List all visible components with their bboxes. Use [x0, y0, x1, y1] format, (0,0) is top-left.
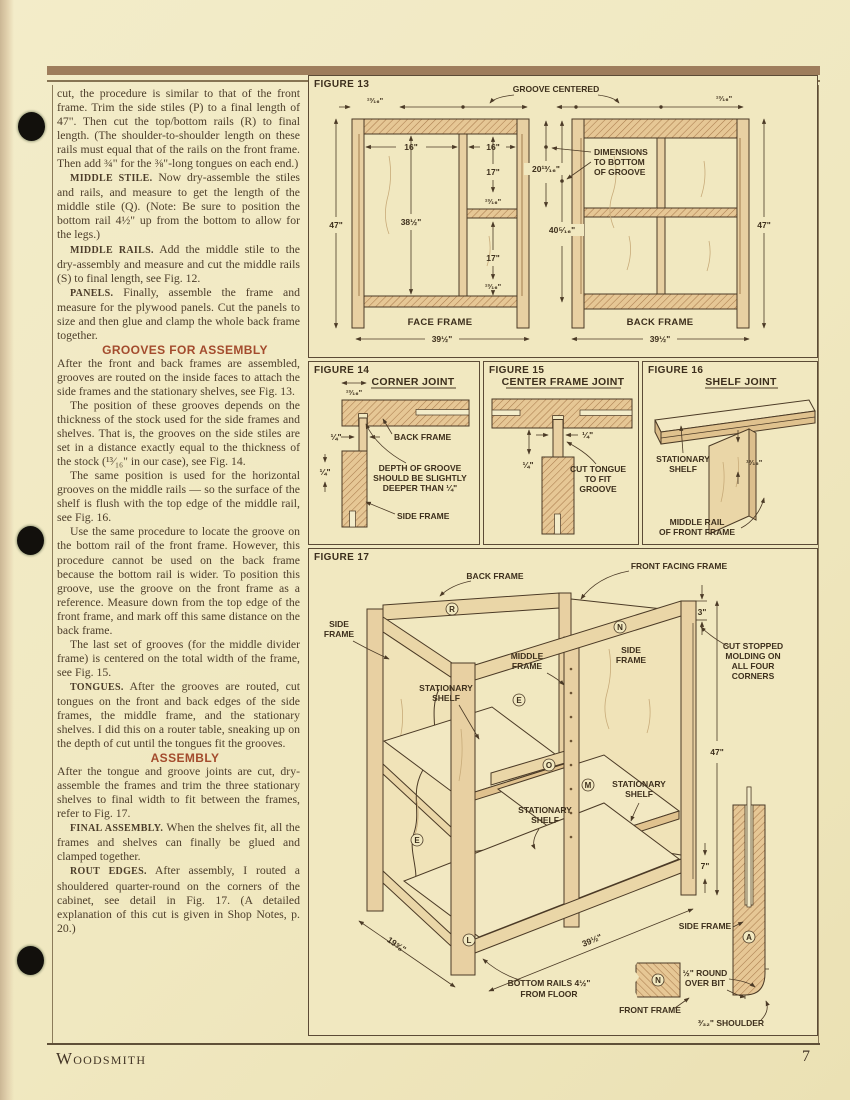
dim-40-5-16: 40⁵⁄₁₆": [549, 225, 575, 235]
paragraph: FINAL ASSEMBLY. When the shelves fit, al…: [57, 821, 300, 864]
dim-17: 17": [486, 253, 500, 263]
center-frame-joint-drawing: CENTER FRAME JOINT: [492, 376, 632, 534]
middle-frame-label: FRAME: [512, 661, 543, 671]
footer-page-number: 7: [802, 1048, 810, 1066]
shoulder-label: ³⁄₃₂" SHOULDER: [698, 1018, 764, 1028]
binder-hole: [18, 112, 45, 141]
back-frame-label: BACK FRAME: [394, 432, 451, 442]
dim-quarter: ¼": [582, 430, 593, 440]
paragraph: The same position is used for the horizo…: [57, 469, 300, 525]
stationary-shelf-label: SHELF: [625, 789, 653, 799]
footer-brand: Woodsmith: [56, 1049, 146, 1069]
figure-14: FIGURE 14 CORNER JOINT ¹³⁄₁₆" ¼" ¼" BACK…: [308, 361, 480, 545]
dim-47: 47": [757, 220, 771, 230]
molding-note: CUT STOPPED: [723, 641, 783, 651]
dim-13-16: ¹³⁄₁₆": [346, 388, 363, 397]
paragraph: The last set of grooves (for the middle …: [57, 638, 300, 680]
detail-front-frame-label: FRONT FRAME: [619, 1005, 681, 1015]
part-letter-o: O: [546, 761, 552, 770]
article-text-column: cut, the procedure is similar to that of…: [57, 87, 300, 936]
figure-14-drawing: CORNER JOINT ¹³⁄₁₆" ¼" ¼" BACK FRAME DEP…: [309, 362, 478, 543]
figure-16-title: SHELF JOINT: [705, 376, 777, 388]
paragraph: TONGUES. After the grooves are routed, c…: [57, 680, 300, 751]
middle-frame-label: MIDDLE: [511, 651, 544, 661]
groove-depth-note: DEEPER THAN ¼": [383, 483, 457, 493]
molding-note: MOLDING ON: [725, 651, 780, 661]
dim-47: 47": [329, 220, 343, 230]
paragraph: After the tongue and groove joints are c…: [57, 765, 300, 821]
face-frame-label: FACE FRAME: [408, 317, 473, 328]
figure-13-tag: FIGURE 13: [314, 79, 369, 90]
molding-note: ALL FOUR: [732, 661, 775, 671]
part-letter-a: A: [746, 933, 752, 942]
paragraph: cut, the procedure is similar to that of…: [57, 87, 300, 171]
stationary-shelf-label: STATIONARY: [518, 805, 572, 815]
dim-20-13-16: 20¹³⁄₁₆": [532, 164, 560, 174]
groove-note-line: DIMENSIONS: [594, 147, 648, 157]
part-letter-n: N: [617, 623, 623, 632]
groove-note-line: TO BOTTOM: [594, 157, 645, 167]
side-frame-label: SIDE: [621, 645, 641, 655]
tongue-note: GROOVE: [579, 484, 617, 494]
dim-13-16: ¹³⁄₁₆": [746, 458, 763, 467]
dim-13-16: ¹³⁄₁₆": [485, 282, 502, 291]
dim-3: 3": [698, 607, 707, 617]
top-rule-bar: [47, 66, 820, 75]
figure-15: FIGURE 15 CENTER FRAME JOINT ¼" ¼" CUT T…: [483, 361, 639, 545]
corner-joint-drawing: CORNER JOINT: [342, 376, 469, 527]
part-letter-r: R: [449, 605, 455, 614]
bottom-rails-note: FROM FLOOR: [520, 989, 577, 999]
figure-14-tag: FIGURE 14: [314, 365, 369, 376]
figure-17-drawing: R N E O M E L BACK FRAME FRONT FACING FR…: [309, 549, 816, 1034]
dim-17: 17": [486, 167, 500, 177]
figure-13: FIGURE 13: [308, 75, 818, 358]
figure-15-drawing: CENTER FRAME JOINT ¼" ¼" CUT TONGUE TO F…: [484, 362, 637, 543]
molding-note: CORNERS: [732, 671, 775, 681]
paragraph: MIDDLE STILE. Now dry-assemble the stile…: [57, 171, 300, 242]
paragraph: The position of these grooves depends on…: [57, 399, 300, 469]
column-rule-left: [52, 85, 53, 1043]
middle-rail-label: MIDDLE RAIL: [670, 517, 725, 527]
figure-17: FIGURE 17: [308, 548, 818, 1036]
paragraph: Use the same procedure to locate the gro…: [57, 525, 300, 637]
section-heading-grooves: GROOVES FOR ASSEMBLY: [57, 343, 300, 357]
middle-rail-label: OF FRONT FRAME: [659, 527, 735, 537]
figure-16-drawing: SHELF JOINT ¹³⁄₁₆" STATIONARY SHELF MIDD…: [643, 362, 816, 543]
dim-quarter: ¼": [330, 432, 341, 442]
figure-17-tag: FIGURE 17: [314, 552, 369, 563]
binder-hole: [17, 946, 44, 975]
dim-13-16: ¹³⁄₁₆": [716, 94, 733, 103]
tongue-note: TO FIT: [585, 474, 613, 484]
back-frame-label: BACK FRAME: [627, 317, 694, 328]
part-letter-e: E: [516, 696, 522, 705]
figure-15-title: CENTER FRAME JOINT: [502, 376, 625, 388]
side-frame-label: SIDE FRAME: [397, 511, 450, 521]
paragraph: After the front and back frames are asse…: [57, 357, 300, 399]
cabinet-middle-frame: [564, 637, 579, 927]
dim-19-58: 19⅝": [385, 935, 408, 955]
groove-depth-note: DEPTH OF GROOVE: [379, 463, 462, 473]
dim-7: 7": [701, 861, 710, 871]
part-letter-n: N: [655, 976, 661, 985]
figure-13-drawing: GROOVE CENTERED ¹³⁄₁₆" ¹³⁄₁₆" 16" 16" 17…: [309, 76, 816, 356]
dim-39-5: 39½": [650, 334, 671, 344]
paragraph: MIDDLE RAILS. Add the middle stile to th…: [57, 243, 300, 286]
section-heading-assembly: ASSEMBLY: [57, 751, 300, 765]
bottom-rails-note: BOTTOM RAILS 4½": [508, 978, 591, 988]
dim-13-16: ¹³⁄₁₆": [367, 96, 384, 105]
paragraph: PANELS. Finally, assemble the frame and …: [57, 286, 300, 343]
tongue-note: CUT TONGUE: [570, 464, 626, 474]
stationary-shelf-label: SHELF: [432, 693, 460, 703]
dim-13-16: ¹³⁄₁₆": [485, 197, 502, 206]
figure-14-title: CORNER JOINT: [372, 376, 455, 388]
figure-15-tag: FIGURE 15: [489, 365, 544, 376]
part-letter-m: M: [585, 781, 592, 790]
dim-47: 47": [710, 747, 724, 757]
groove-centered-label: GROOVE CENTERED: [513, 84, 599, 94]
figure-16: FIGURE 16 SHELF JOINT ¹³⁄₁₆" STATIONARY …: [642, 361, 818, 545]
column-rule-right: [818, 85, 819, 1043]
side-frame-label: FRAME: [616, 655, 647, 665]
dim-quarter: ¼": [319, 467, 330, 477]
binder-hole: [17, 526, 44, 555]
figure-16-tag: FIGURE 16: [648, 365, 703, 376]
side-frame-label: FRAME: [324, 629, 355, 639]
paragraph: ROUT EDGES. After assembly, I routed a s…: [57, 864, 300, 935]
page-edge: [0, 0, 14, 1100]
groove-note-line: OF GROOVE: [594, 167, 646, 177]
groove-depth-note: SHOULD BE SLIGHTLY: [373, 473, 467, 483]
front-facing-frame-label: FRONT FACING FRAME: [631, 561, 728, 571]
stationary-shelf-label: SHELF: [531, 815, 559, 825]
back-frame-label: BACK FRAME: [466, 571, 523, 581]
part-letter-e: E: [414, 836, 420, 845]
dim-38-5: 38½": [401, 217, 422, 227]
face-frame-drawing: [352, 119, 529, 328]
side-frame-label: SIDE: [329, 619, 349, 629]
stationary-shelf-label: SHELF: [669, 464, 697, 474]
stationary-shelf-label: STATIONARY: [656, 454, 710, 464]
stationary-shelf-label: STATIONARY: [419, 683, 473, 693]
round-over-bit-label: ½" ROUND: [683, 968, 728, 978]
detail-side-frame-label: SIDE FRAME: [679, 921, 732, 931]
part-letter-l: L: [467, 936, 472, 945]
footer-rule: [47, 1043, 820, 1045]
dim-quarter: ¼": [522, 460, 533, 470]
round-over-bit-label: OVER BIT: [685, 978, 726, 988]
stationary-shelf-label: STATIONARY: [612, 779, 666, 789]
dim-39-5: 39½": [432, 334, 453, 344]
